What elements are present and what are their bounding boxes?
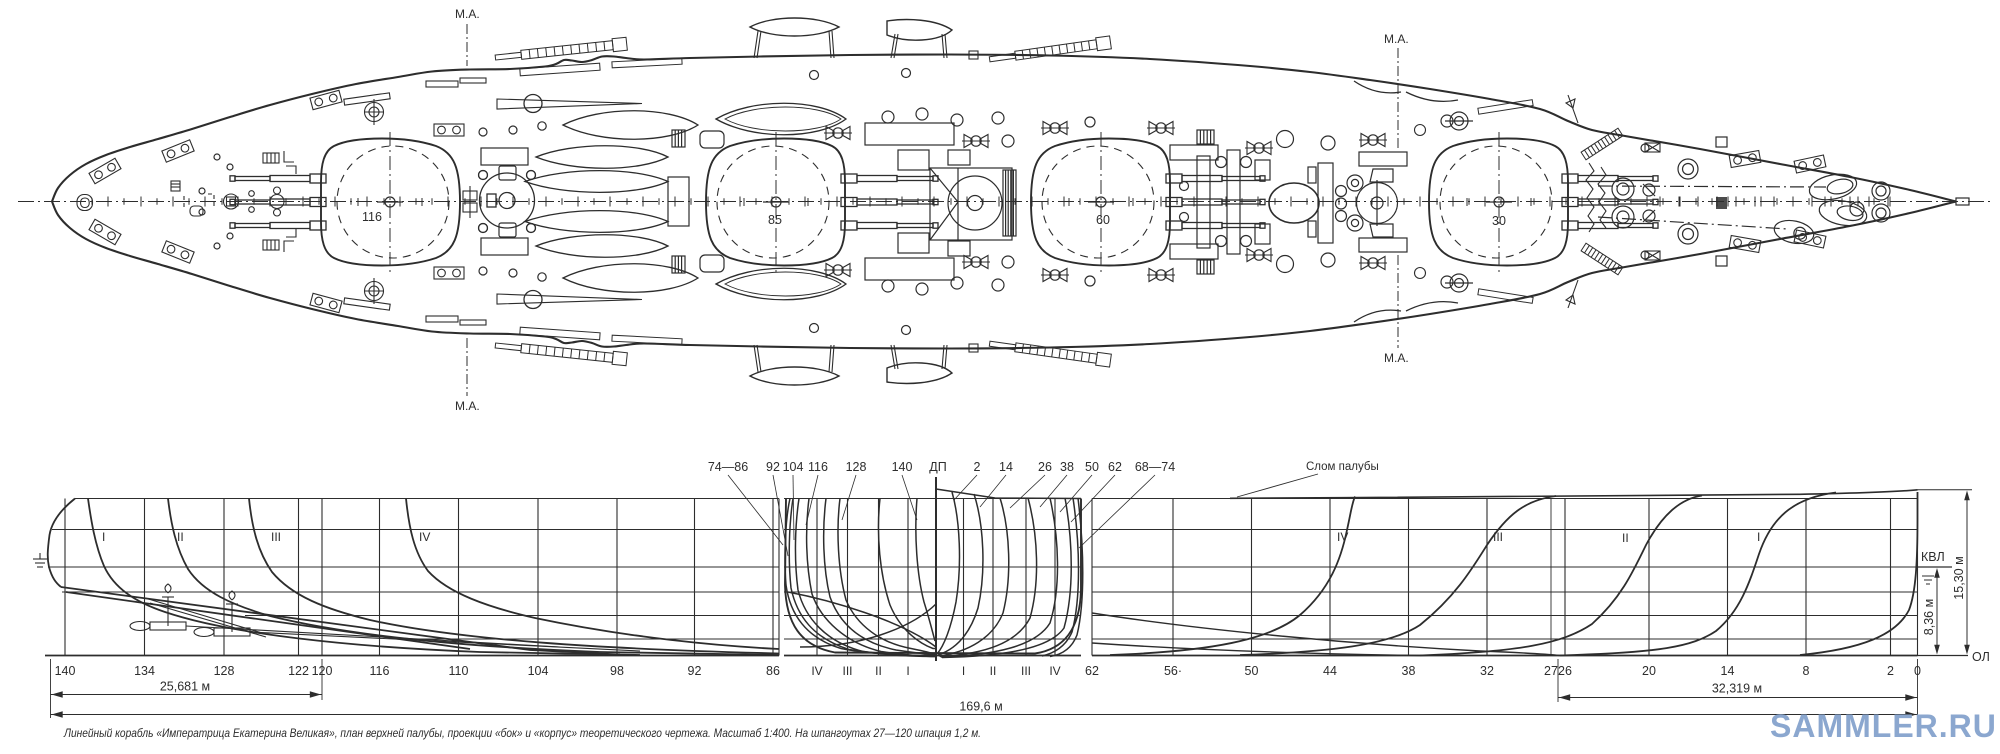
svg-text:104: 104	[528, 664, 549, 678]
svg-text:104: 104	[783, 460, 804, 474]
svg-text:25,681 м: 25,681 м	[160, 680, 210, 694]
svg-text:8: 8	[1803, 664, 1810, 678]
svg-text:86: 86	[766, 664, 780, 678]
svg-text:I: I	[102, 530, 105, 544]
svg-text:SAMMLER.RU: SAMMLER.RU	[1770, 708, 1997, 744]
svg-text:134: 134	[134, 664, 155, 678]
svg-text:110: 110	[449, 664, 469, 678]
svg-text:III: III	[1493, 530, 1503, 544]
svg-text:IV: IV	[1337, 530, 1348, 544]
svg-text:32: 32	[1480, 664, 1494, 678]
svg-text:M.A.: M.A.	[455, 399, 480, 413]
svg-text:15,30 м: 15,30 м	[1952, 556, 1966, 599]
svg-text:III: III	[271, 530, 281, 544]
svg-text:IV: IV	[811, 664, 822, 678]
svg-text:26: 26	[1558, 664, 1572, 678]
svg-text:26: 26	[1038, 460, 1052, 474]
svg-text:III: III	[842, 664, 852, 678]
svg-text:20: 20	[1642, 664, 1656, 678]
svg-text:44: 44	[1323, 664, 1337, 678]
svg-text:I: I	[906, 664, 909, 678]
svg-text:M.A.: M.A.	[455, 7, 480, 21]
svg-text:140: 140	[892, 460, 913, 474]
svg-text:169,6 м: 169,6 м	[959, 700, 1002, 714]
svg-text:II: II	[177, 530, 184, 544]
svg-text:116: 116	[370, 664, 390, 678]
svg-text:92: 92	[688, 664, 702, 678]
svg-text:60: 60	[1096, 213, 1110, 227]
svg-text:74—86: 74—86	[708, 460, 748, 474]
svg-text:Слом палубы: Слом палубы	[1306, 461, 1379, 473]
svg-text:85: 85	[768, 213, 782, 227]
svg-text:116: 116	[808, 460, 828, 474]
svg-text:2: 2	[974, 460, 981, 474]
svg-text:IV: IV	[1049, 664, 1060, 678]
svg-text:62: 62	[1085, 664, 1099, 678]
svg-text:56·: 56·	[1164, 664, 1182, 678]
svg-text:IV: IV	[419, 530, 430, 544]
svg-text:M.A.: M.A.	[1384, 32, 1409, 46]
svg-text:Линейный корабль «Императрица: Линейный корабль «Императрица Екатерина …	[63, 726, 981, 740]
svg-text:62: 62	[1108, 460, 1122, 474]
svg-text:ОЛ: ОЛ	[1972, 650, 1990, 664]
svg-text:II: II	[875, 664, 882, 678]
svg-text:I: I	[1757, 530, 1760, 544]
svg-text:14: 14	[1721, 664, 1735, 678]
svg-text:M.A.: M.A.	[1384, 351, 1409, 365]
svg-text:140: 140	[55, 664, 76, 678]
svg-text:38: 38	[1402, 664, 1416, 678]
svg-text:128: 128	[214, 664, 235, 678]
svg-text:II: II	[990, 664, 997, 678]
svg-text:122: 122	[288, 664, 309, 678]
svg-text:50: 50	[1085, 460, 1099, 474]
svg-text:92: 92	[766, 460, 780, 474]
svg-text:I: I	[962, 664, 965, 678]
svg-text:14: 14	[999, 460, 1013, 474]
svg-text:III: III	[1021, 664, 1031, 678]
svg-text:2: 2	[1887, 664, 1894, 678]
svg-text:30: 30	[1492, 214, 1506, 228]
svg-text:II: II	[1622, 531, 1629, 545]
svg-text:98: 98	[610, 664, 624, 678]
svg-text:68—74: 68—74	[1135, 460, 1175, 474]
svg-text:50: 50	[1245, 664, 1259, 678]
svg-text:27: 27	[1544, 664, 1558, 678]
svg-text:32,319 м: 32,319 м	[1712, 682, 1762, 696]
svg-text:116: 116	[362, 210, 382, 224]
svg-text:8,36 м: 8,36 м	[1922, 599, 1936, 635]
svg-text:ДП: ДП	[929, 460, 946, 474]
svg-text:38: 38	[1060, 460, 1074, 474]
svg-text:КВЛ: КВЛ	[1921, 550, 1945, 564]
svg-text:128: 128	[846, 460, 867, 474]
